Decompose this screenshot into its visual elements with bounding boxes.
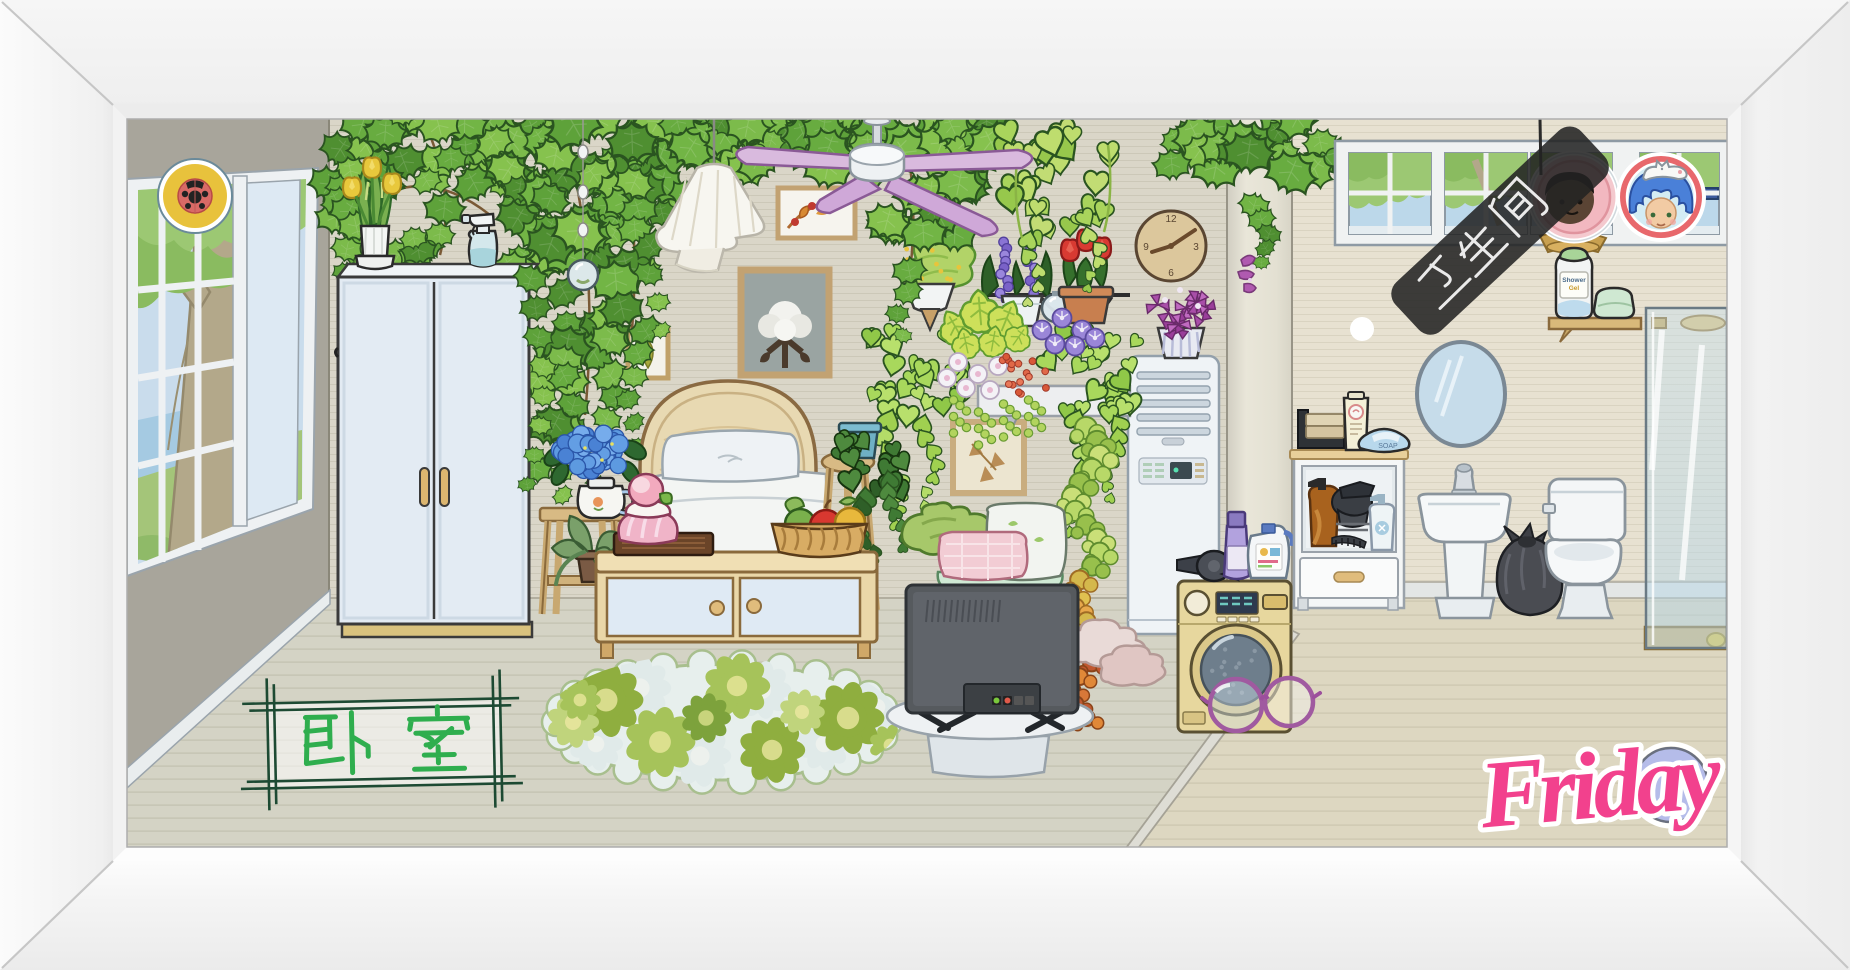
svg-text:SOAP: SOAP: [1378, 443, 1398, 450]
svg-text:12: 12: [1165, 214, 1177, 225]
svg-text:6: 6: [1168, 268, 1174, 279]
svg-text:Gel: Gel: [1569, 285, 1580, 292]
svg-text:9: 9: [1143, 242, 1149, 253]
svg-text:Friday: Friday: [1474, 721, 1725, 849]
svg-text:Shower: Shower: [1562, 277, 1586, 284]
svg-text:3: 3: [1193, 242, 1199, 253]
